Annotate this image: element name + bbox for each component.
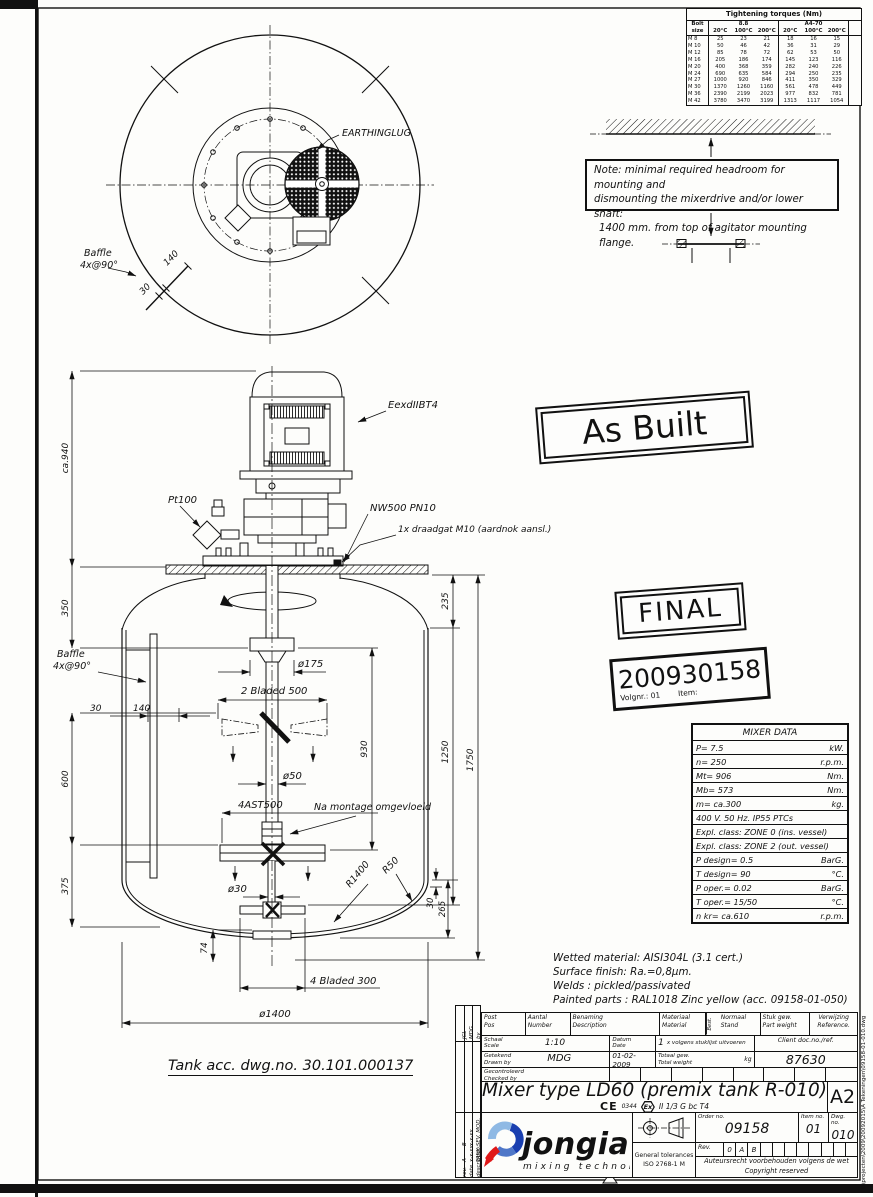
- torque-row: M 27 1000 920 846 411 350 329: [687, 77, 862, 84]
- torque-row: M 10 50 46 42 36 31 29: [687, 43, 862, 50]
- dim-375: 375: [61, 877, 71, 894]
- rev-by-2: MDG: [470, 1026, 475, 1039]
- torque-row: M 30 1370 1260 1160 561 478 449: [687, 84, 862, 91]
- drawing-sheet: EARTHINGLUG Baffle 4x@90° 140 30: [0, 0, 873, 1197]
- dwg-number: 010: [831, 1129, 855, 1141]
- date-value: 01-02-2009: [610, 1052, 656, 1067]
- logo-swirl-light: [492, 1126, 511, 1139]
- front-view: [98, 366, 428, 968]
- label-baffle-front-1: Baffle: [57, 649, 85, 660]
- dim-235: 235: [441, 592, 451, 609]
- mixer-data-row: n kr= ca.610 r.p.m.: [693, 909, 847, 922]
- label-na-montage: Na montage omgevloeid: [314, 802, 432, 813]
- mixer-data-row: Expl. class: ZONE 2 (out. vessel): [693, 839, 847, 853]
- dim-30-right: 30: [426, 898, 436, 909]
- dim-265: 265: [438, 901, 448, 917]
- stamp-item: Item:: [678, 687, 698, 698]
- scale-value: 1:10: [545, 1038, 565, 1049]
- torque-row: M 8 25 23 21 18 16 15: [687, 36, 862, 43]
- label-draadgat: 1x draadgat M10 (aardnok aansl.): [398, 525, 551, 535]
- ce-mark: CE: [600, 1100, 618, 1113]
- file-path: K:\projecten\2009\20092015\A Tekeningen\…: [861, 1016, 867, 1190]
- label-eexd: EexdIIBT4: [388, 400, 438, 411]
- ex-mark-icon: Ex: [641, 1101, 655, 1113]
- torque-group-a470: A4-70: [779, 21, 849, 29]
- as-built-text: As Built: [540, 396, 748, 459]
- stamp-volgnr: Volgnr.: 01: [620, 690, 661, 702]
- material-note-line: Welds : pickled/passivated: [553, 979, 853, 993]
- label-earthinglug: EARTHINGLUG: [342, 128, 411, 139]
- rev-0: 0: [724, 1143, 736, 1156]
- final-stamp: FINAL: [614, 582, 746, 640]
- atex-class: II 1/3 G bc T4: [659, 1102, 709, 1111]
- dim-175: ø175: [297, 659, 323, 670]
- dim-1400: ø1400: [258, 1009, 291, 1020]
- logo-text: jongia: [518, 1127, 629, 1162]
- logo-tagline: mixing technology: [523, 1162, 630, 1172]
- final-text: FINAL: [620, 588, 742, 635]
- tolerance-line-1: General tolerances: [635, 1151, 694, 1160]
- rev-by-1: JCL: [463, 1031, 468, 1039]
- projection-symbol-icon: [633, 1113, 695, 1143]
- mixer-data-row: n= 250 r.p.m.: [693, 755, 847, 769]
- label-pt100: Pt100: [168, 495, 197, 506]
- torque-group-88: 8.8: [709, 21, 779, 29]
- revision-row: Rev. 0 A B: [696, 1143, 857, 1157]
- dim-140-top: 140: [162, 249, 181, 269]
- note-line-1: Note: minimal required headroom for moun…: [594, 164, 830, 193]
- mixer-data-row: P oper.= 0.02 BarG.: [693, 881, 847, 895]
- order-number: 09158: [698, 1122, 796, 1136]
- label-baffle-top-2: 4x@90°: [80, 260, 118, 271]
- note-line-2: dismounting the mixerdrive and/or lower …: [594, 193, 830, 222]
- mixer-data-row: T design= 90 °C.: [693, 867, 847, 881]
- material-note-line: Wetted material: AISI304L (3.1 cert.): [553, 951, 853, 965]
- revision-strip: JCL MDG by B x-x-xx SEV. MOD. A x-x-xx T…: [455, 1005, 481, 1178]
- dim-74: 74: [200, 942, 210, 954]
- dim-1750: 1750: [466, 748, 476, 771]
- mixer-data-row: Expl. class: ZONE 0 (ins. vessel): [693, 825, 847, 839]
- dim-r50: R50: [380, 855, 401, 876]
- material-note-line: Surface finish: Ra.=0,8µm.: [553, 965, 853, 979]
- dim-30-top: 30: [138, 282, 153, 297]
- tank-ref-note: Tank acc. dwg.no. 30.101.000137: [168, 1058, 413, 1074]
- torque-col-bolt: Bolt: [687, 21, 709, 29]
- torque-row: M 16 205 186 174 145 123 116: [687, 57, 862, 64]
- client-doc-value: 87630: [755, 1052, 857, 1067]
- title-block: PostPos AantalNumber BenamingDescription…: [481, 1012, 858, 1178]
- dim-140-front: 140: [133, 704, 150, 714]
- label-4ast500: 4AST500: [238, 800, 283, 811]
- mixer-data-row: T oper.= 15/50 °C.: [693, 895, 847, 909]
- drawn-by-value: MDG: [547, 1053, 571, 1066]
- mixer-data-row: Mb= 573 Nm.: [693, 783, 847, 797]
- rev-by-header: by: [477, 1032, 482, 1039]
- copyright-line-2: Copyright reserved: [745, 1167, 808, 1177]
- dim-ca940: ca.940: [61, 442, 71, 473]
- torque-row: M 20 400 368 359 282 240 226: [687, 64, 862, 71]
- dim-r1400: R1400: [344, 859, 372, 890]
- logo-swirl-dark: [511, 1127, 520, 1150]
- tolerance-line-2: ISO 2768-1 M: [643, 1160, 685, 1169]
- dim-350: 350: [61, 599, 71, 616]
- label-baffle-top-1: Baffle: [84, 248, 112, 259]
- dim-1250: 1250: [441, 740, 451, 763]
- tightening-torques-table: Tightening torques (Nm) Bolt 8.8 A4-70 s…: [686, 8, 862, 106]
- tank-ref-text: Tank acc. dwg.no. 30.101.000137: [168, 1058, 413, 1076]
- torque-row: M 42 3780 3470 3199 1313 1117 1054: [687, 98, 862, 105]
- rev-b: B: [748, 1143, 760, 1156]
- torque-row: M 24 690 635 584 294 250 235: [687, 71, 862, 78]
- sheet-size: A2: [827, 1082, 857, 1112]
- material-note-line: Painted parts : RAL1018 Zinc yellow (acc…: [553, 993, 853, 1007]
- mixer-data-table: MIXER DATA P= 7.5 kW. n= 250 r.p.m. Mt= …: [691, 723, 849, 924]
- torque-row: M 36 2390 2199 2023 977 832 781: [687, 91, 862, 98]
- top-view: [106, 25, 434, 346]
- material-notes: Wetted material: AISI304L (3.1 cert.)Sur…: [553, 951, 853, 1007]
- headroom-note: Note: minimal required headroom for moun…: [585, 159, 839, 211]
- dim-30-front: 30: [90, 704, 102, 714]
- drawing-title: Mixer type LD60 (premix tank R-010): [482, 1081, 827, 1100]
- mixer-data-title: MIXER DATA: [693, 725, 847, 741]
- mixer-data-row: P= 7.5 kW.: [693, 741, 847, 755]
- company-logo: jongia mixing technology: [482, 1113, 633, 1177]
- note-line-3: 1400 mm. from top of agitator mounting f…: [594, 222, 830, 251]
- mixer-data-row: m= ca.300 kg.: [693, 797, 847, 811]
- torque-row: M 12 85 78 72 62 53 50: [687, 50, 862, 57]
- label-4bladed300: 4 Bladed 300: [310, 976, 376, 987]
- dim-30-shaft: ø30: [227, 884, 247, 895]
- dim-930: 930: [360, 740, 370, 757]
- label-2bladed500: 2 Bladed 500: [241, 686, 307, 697]
- mixer-data-row: 400 V. 50 Hz. IP55 PTCs: [693, 811, 847, 825]
- dim-600: 600: [61, 770, 71, 787]
- rev-a: A: [736, 1143, 748, 1156]
- torque-table-title: Tightening torques (Nm): [687, 9, 862, 21]
- dim-50: ø50: [282, 771, 302, 782]
- copyright-line-1: Auteursrecht voorbehouden volgens de wet: [704, 1157, 849, 1167]
- mixer-data-row: P design= 0.5 BarG.: [693, 853, 847, 867]
- label-nw500: NW500 PN10: [370, 503, 436, 514]
- mixer-data-row: Mt= 906 Nm.: [693, 769, 847, 783]
- item-number: 01: [801, 1123, 826, 1135]
- label-baffle-front-2: 4x@90°: [53, 661, 91, 672]
